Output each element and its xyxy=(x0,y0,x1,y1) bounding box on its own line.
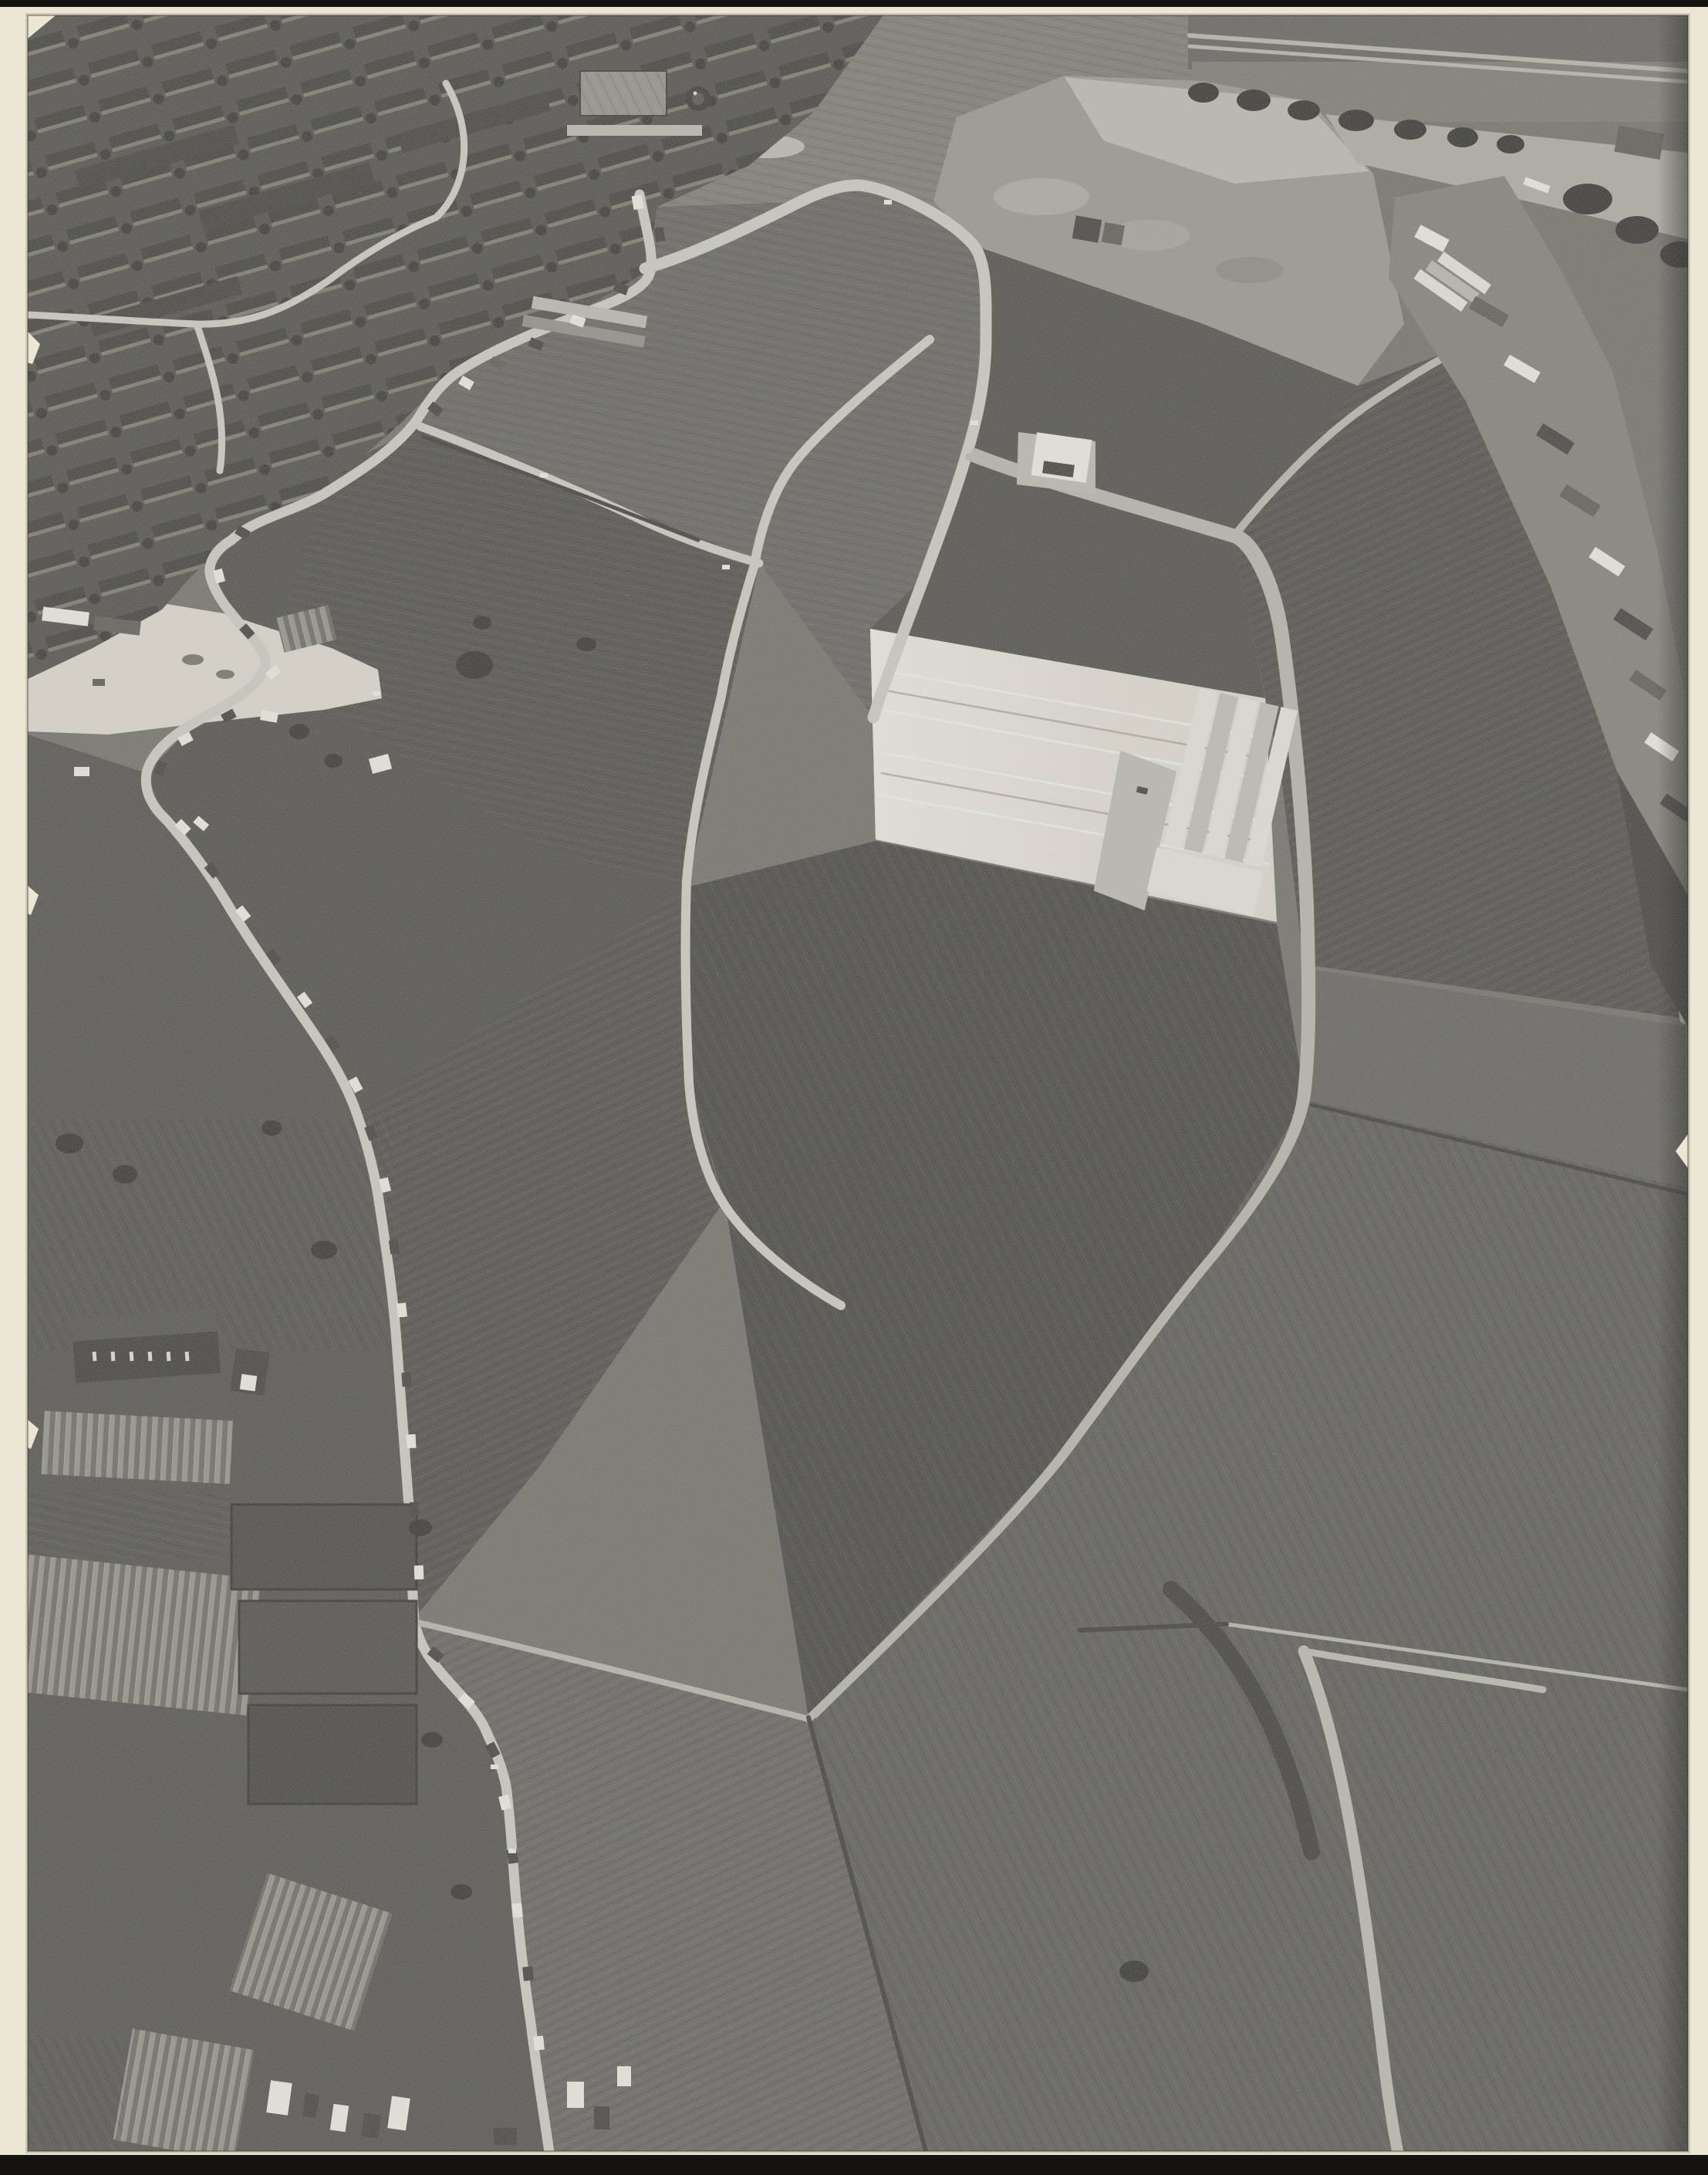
aerial-photo-svg: Black-and-white oblique aerial photograp… xyxy=(0,0,1708,2175)
mounted-photograph: Black-and-white oblique aerial photograp… xyxy=(0,0,1708,2175)
photo-print xyxy=(9,15,1700,2161)
film-grain xyxy=(28,15,1688,2151)
